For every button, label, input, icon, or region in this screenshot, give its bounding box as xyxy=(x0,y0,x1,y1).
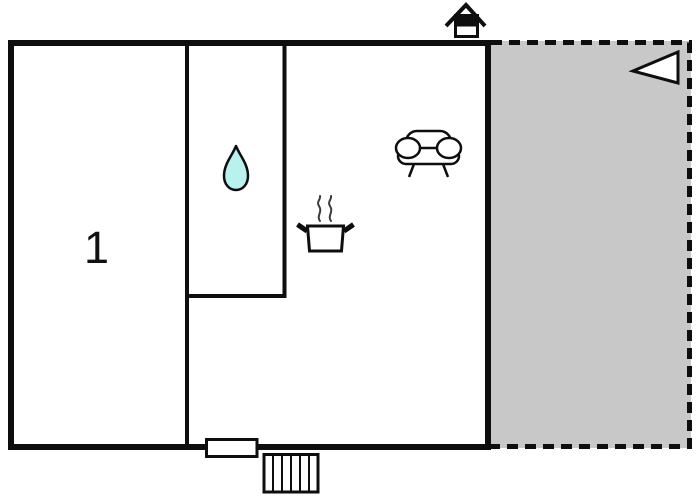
room-number-label: 1 xyxy=(84,222,109,273)
floor-plan: 1 xyxy=(0,0,700,500)
terrace-fill xyxy=(489,41,691,448)
floor-plan-canvas: 1 xyxy=(0,0,700,500)
building-outline xyxy=(11,43,488,447)
chimney-icon xyxy=(446,5,485,37)
stairs-icon xyxy=(264,455,318,493)
terrace-area xyxy=(489,41,691,448)
window-marker xyxy=(207,440,258,457)
